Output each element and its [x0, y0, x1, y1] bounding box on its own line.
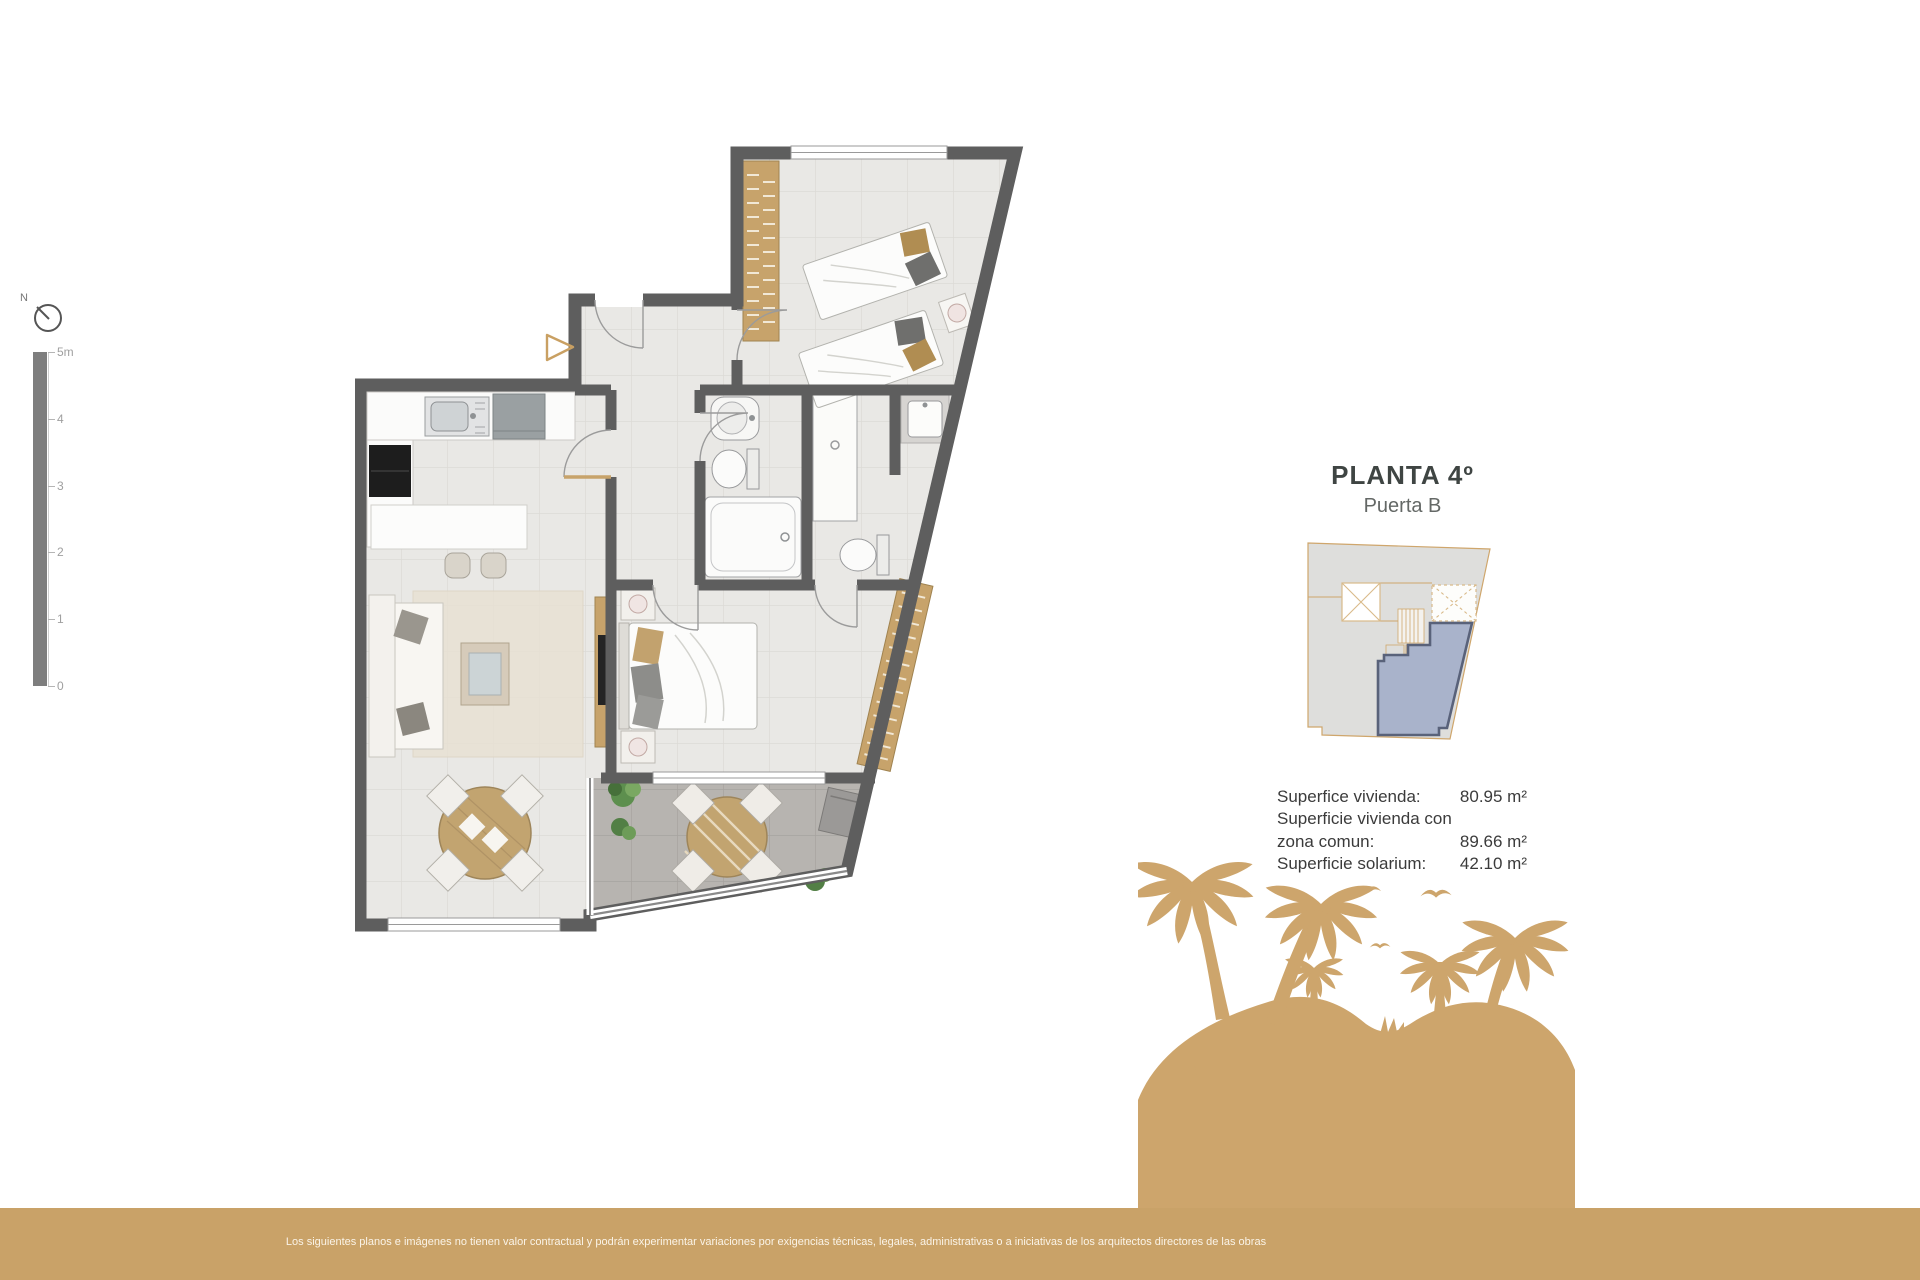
- lamp-icon: [629, 738, 647, 756]
- key-plan: [1300, 533, 1525, 768]
- scale-bar-body: [33, 352, 47, 686]
- shower-tray-icon: [813, 395, 857, 521]
- palm-crown: [1263, 884, 1378, 961]
- compass-north-label: N: [20, 292, 28, 304]
- bathroom-sink-icon: [711, 397, 759, 440]
- surface-value: 80.95 m²: [1460, 786, 1527, 808]
- scale-label-0: 0: [57, 679, 64, 693]
- grass-tuft: [1380, 1016, 1404, 1034]
- vanity-sink-icon: [901, 395, 949, 443]
- scale-label-1: 1: [57, 612, 64, 626]
- sofa: [369, 595, 443, 757]
- island-ground: [1138, 997, 1575, 1210]
- coffee-table: [461, 643, 509, 705]
- bathtub-icon: [705, 497, 801, 577]
- bird-icon: [1370, 943, 1391, 948]
- scale-bar-rail: [48, 352, 49, 686]
- bird-icon: [1420, 890, 1451, 898]
- page-title: PLANTA 4º: [1290, 460, 1515, 491]
- north-compass: N: [18, 290, 78, 340]
- double-bed: [619, 623, 757, 729]
- scale-label-2: 2: [57, 545, 64, 559]
- footer-bar: Los siguientes planos e imágenes no tien…: [0, 1208, 1920, 1280]
- cooktop-icon: [369, 445, 411, 497]
- footer-disclaimer: Los siguientes planos e imágenes no tien…: [0, 1236, 1552, 1248]
- palm-trees-decoration: [1138, 838, 1575, 1210]
- palm-crown: [1138, 860, 1255, 944]
- entrance-door-gap: [595, 293, 643, 307]
- pillow: [900, 228, 930, 257]
- scale-label-3: 3: [57, 479, 64, 493]
- toilet-icon: [712, 449, 759, 489]
- twin-wardrobe: [743, 161, 779, 341]
- stair-shaft-icon: [1432, 585, 1476, 621]
- elevator-shaft-icon: [1342, 583, 1380, 621]
- scale-label-4: 4: [57, 412, 64, 426]
- lamp-icon: [629, 595, 647, 613]
- surface-row: Superfice vivienda: 80.95 m²: [1277, 786, 1527, 808]
- scale-bar: 5m 4 3 2 1 0: [28, 346, 98, 698]
- palm-crown: [1460, 919, 1570, 992]
- kitchen-sink-icon: [425, 397, 489, 436]
- scale-label-5m: 5m: [57, 345, 74, 359]
- floor-plan: [355, 145, 1025, 935]
- refrigerator-icon: [493, 394, 545, 439]
- kitchen-island: [371, 505, 527, 549]
- title-block: PLANTA 4º Puerta B: [1290, 460, 1515, 518]
- surface-label: Superfice vivienda:: [1277, 786, 1460, 808]
- page-subtitle: Puerta B: [1290, 495, 1515, 518]
